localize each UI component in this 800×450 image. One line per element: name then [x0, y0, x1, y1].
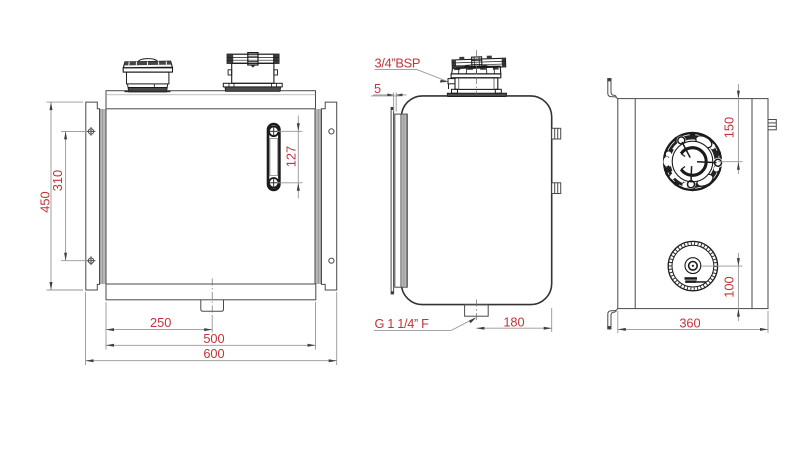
svg-text:600: 600	[203, 346, 224, 361]
svg-text:150: 150	[721, 117, 736, 138]
svg-text:5: 5	[374, 81, 381, 96]
svg-text:127: 127	[283, 146, 298, 167]
svg-text:250: 250	[150, 315, 171, 330]
svg-text:G 1 1/4” F: G 1 1/4” F	[375, 316, 430, 331]
svg-text:360: 360	[679, 316, 700, 331]
svg-text:3/4”BSP: 3/4”BSP	[375, 55, 421, 70]
svg-text:450: 450	[37, 191, 52, 212]
svg-text:180: 180	[503, 314, 524, 329]
svg-text:310: 310	[50, 170, 65, 191]
svg-text:100: 100	[721, 276, 736, 297]
svg-text:500: 500	[203, 331, 224, 346]
